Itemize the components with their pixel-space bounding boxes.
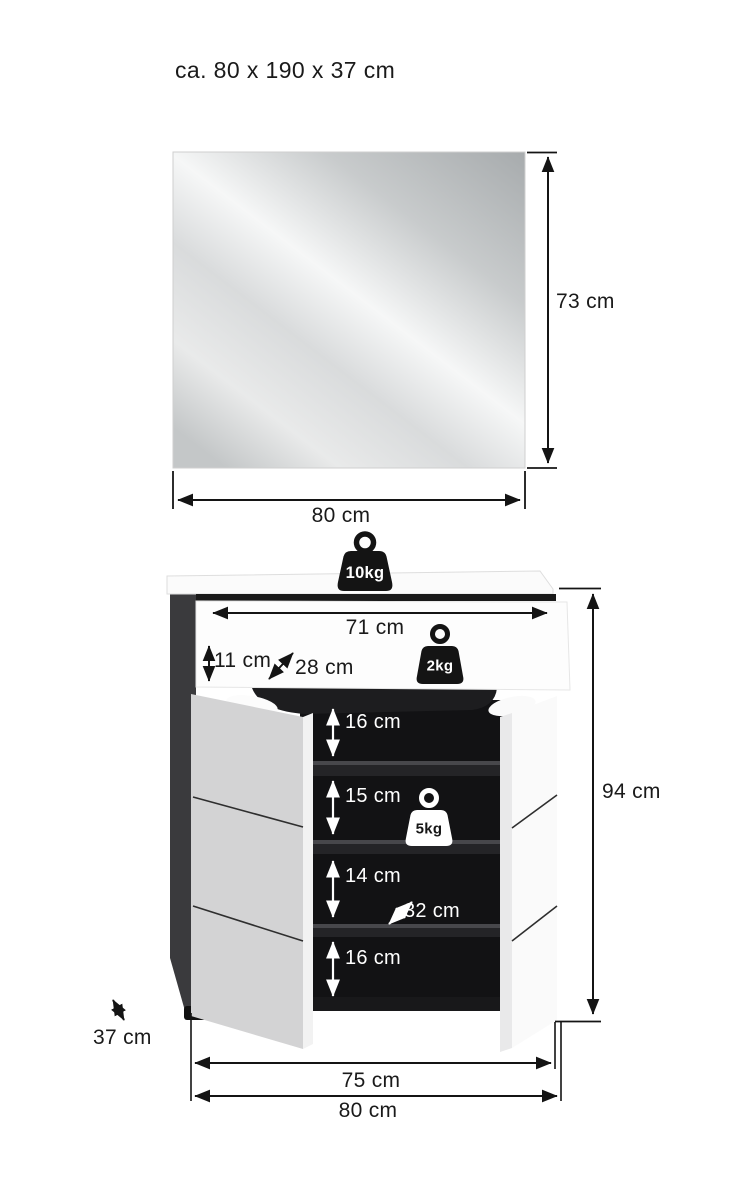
shelf-1-label: 16 cm: [345, 712, 401, 732]
shelf-depth-label: 32 cm: [404, 901, 460, 921]
front-width-label: 75 cm: [342, 1070, 401, 1091]
shelf-2-label: 15 cm: [345, 786, 401, 806]
top-load-label: 10kg: [346, 565, 385, 582]
cabinet-depth-label: 37 cm: [93, 1027, 152, 1048]
cabinet-left-door: [191, 694, 313, 1049]
cabinet-height-label: 94 cm: [602, 781, 661, 802]
diagram-artwork: [0, 0, 744, 1200]
dimension-diagram: ca. 80 x 190 x 37 cm 73 cm 80 cm 71 cm 1…: [0, 0, 744, 1200]
drawer-load-label: 2kg: [427, 659, 454, 674]
mirror-height-label: 73 cm: [556, 291, 615, 312]
drawer-height-label: 11 cm: [214, 650, 271, 671]
page-title: ca. 80 x 190 x 37 cm: [175, 57, 395, 85]
cabinet-right-door: [500, 696, 557, 1052]
inner-width-label: 71 cm: [346, 617, 405, 638]
shelf-4-label: 16 cm: [345, 948, 401, 968]
cabinet-drawer: [196, 601, 570, 690]
shelf-3-label: 14 cm: [345, 866, 401, 886]
mirror-width-label: 80 cm: [312, 505, 371, 526]
weight-10kg-icon: [338, 534, 393, 591]
mirror: [173, 152, 525, 468]
total-width-label: 80 cm: [339, 1100, 398, 1121]
drawer-depth-label: 28 cm: [295, 657, 354, 678]
shelf-load-label: 5kg: [416, 822, 443, 837]
